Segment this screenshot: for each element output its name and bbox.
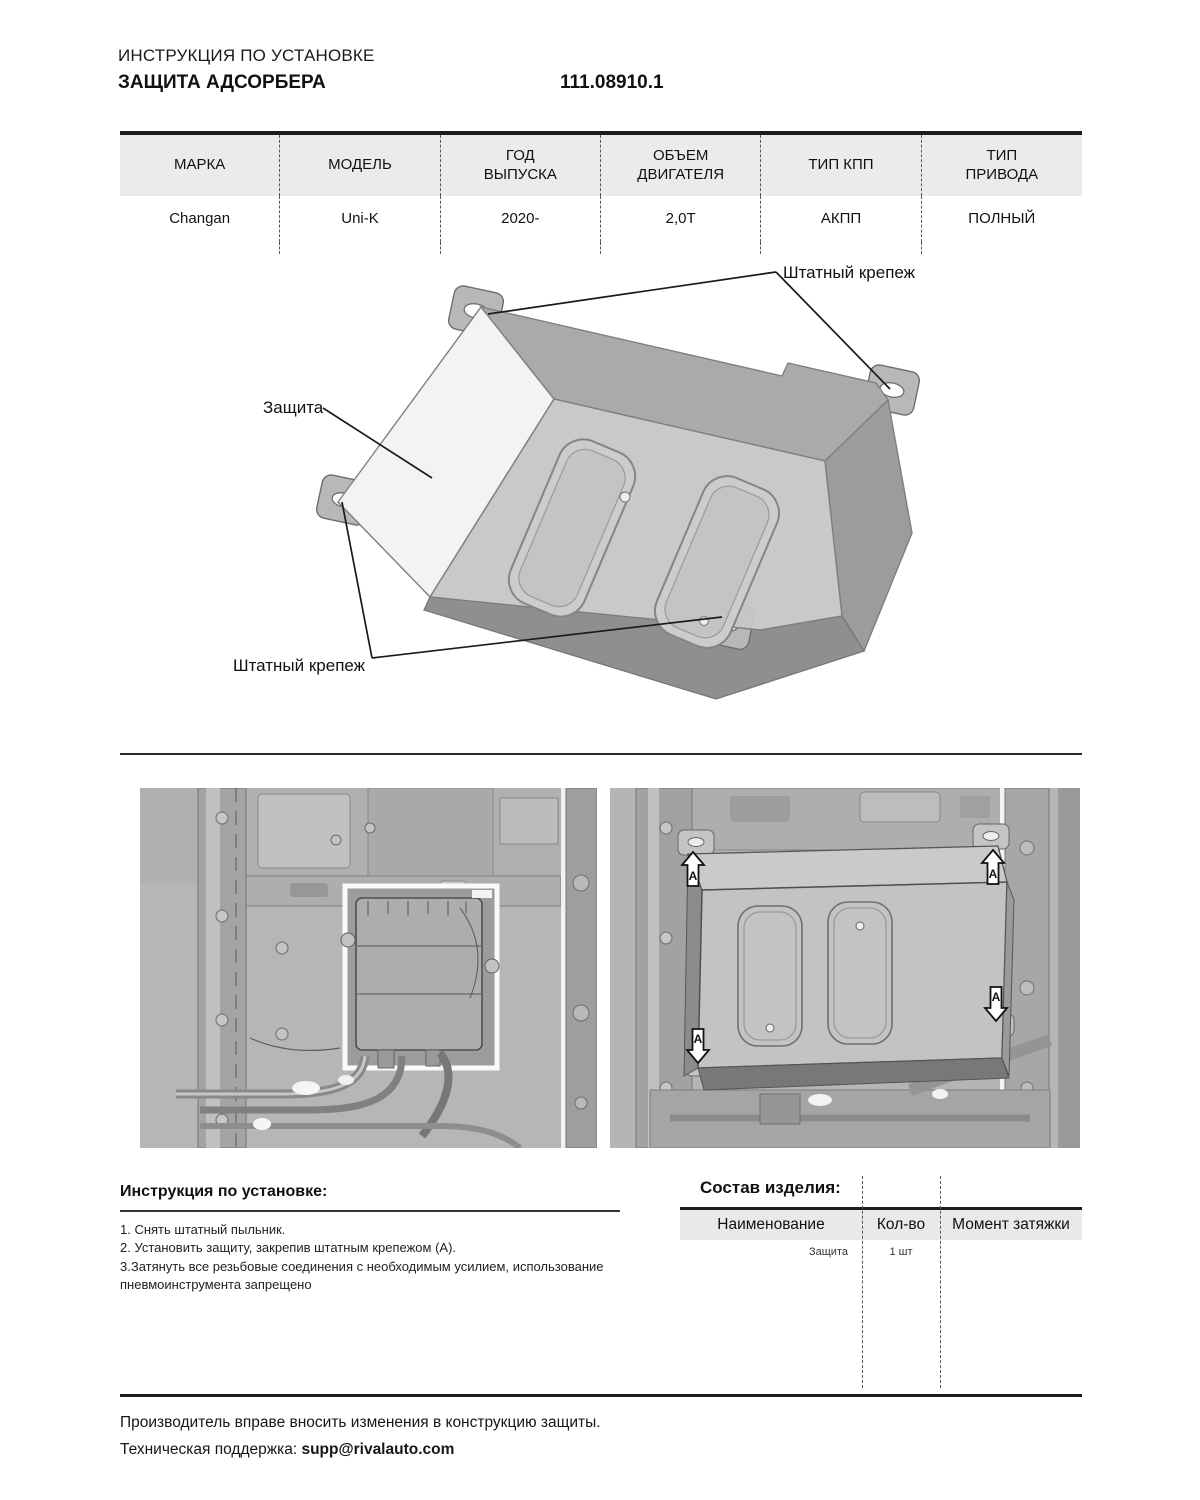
instruction-step: 3.Затянуть все резьбовые соединения с не…	[120, 1258, 660, 1295]
spec-value: 2,0T	[601, 196, 761, 242]
label-fastener-top: Штатный крепеж	[783, 263, 916, 282]
composition-item-torque	[940, 1240, 1082, 1264]
part-number: 111.08910.1	[560, 72, 664, 94]
label-fastener-bottom: Штатный крепеж	[233, 656, 366, 675]
spec-col-header: ТИП КПП	[761, 135, 921, 196]
canister-bracket	[485, 959, 499, 973]
mount-point	[678, 830, 714, 855]
spec-col-header: ГОД ВЫПУСКА	[441, 135, 601, 196]
composition-col-header: Момент затяжки	[940, 1210, 1082, 1240]
footer-support: Техническая поддержка: supp@rivalauto.co…	[120, 1437, 601, 1464]
support-email: supp@rivalauto.com	[301, 1441, 454, 1458]
composition-col-header: Наименование	[680, 1210, 862, 1240]
instructions-rule	[120, 1210, 620, 1212]
spec-value: 2020-	[441, 196, 601, 242]
composition-table: Наименование Кол-во Момент затяжки Защит…	[680, 1207, 1082, 1264]
adsorber-canister	[356, 898, 482, 1068]
instruction-step: 1. Снять штатный пыльник.	[120, 1221, 660, 1239]
composition-divider	[862, 1176, 863, 1388]
spec-col-header: ОБЪЕМ ДВИГАТЕЛЯ	[601, 135, 761, 196]
footer-rule	[120, 1394, 1082, 1397]
page-title: ЗАЩИТА АДСОРБЕРА	[118, 72, 326, 93]
photo-underbody-installed: A A A A	[610, 788, 1080, 1148]
spec-value: Changan	[120, 196, 280, 242]
spec-value: ПОЛНЫЙ	[922, 196, 1082, 242]
instruction-step: 2. Установить защиту, закрепив штатным к…	[120, 1239, 660, 1257]
svg-text:A: A	[992, 990, 1001, 1004]
spec-value: Uni-K	[280, 196, 440, 242]
svg-text:A: A	[989, 867, 998, 881]
instructions-title: Инструкция по установке:	[120, 1183, 665, 1201]
composition-row: Защита 1 шт	[680, 1240, 1082, 1264]
installation-instructions: Инструкция по установке: 1. Снять штатны…	[120, 1183, 665, 1295]
footer: Производитель вправе вносить изменения в…	[120, 1410, 601, 1463]
mount-point	[973, 824, 1009, 849]
leader-fastener-top-a	[488, 272, 776, 314]
composition-title: Состав изделия:	[700, 1178, 841, 1198]
spec-value: АКПП	[761, 196, 921, 242]
composition-col-header: Кол-во	[862, 1210, 940, 1240]
svg-text:A: A	[694, 1032, 703, 1046]
spec-col-header: ТИП ПРИВОДА	[922, 135, 1082, 196]
composition-divider	[940, 1176, 941, 1388]
doc-type: ИНСТРУКЦИЯ ПО УСТАНОВКЕ	[118, 46, 1082, 66]
guard-hole	[620, 492, 630, 502]
spec-col-header: МАРКА	[120, 135, 280, 196]
installed-guard-plate	[684, 846, 1014, 1090]
product-composition: Состав изделия: Наименование Кол-во Моме…	[680, 1176, 1082, 1388]
spec-col-header: МОДЕЛЬ	[280, 135, 440, 196]
vehicle-spec-table: МАРКА МОДЕЛЬ ГОД ВЫПУСКА ОБЪЕМ ДВИГАТЕЛЯ…	[120, 131, 1082, 254]
composition-item-qty: 1 шт	[862, 1240, 940, 1264]
composition-item-name: Защита	[680, 1240, 862, 1264]
frame-rail-right	[566, 788, 597, 1148]
section-divider	[120, 753, 1082, 755]
guard-technical-drawing: Штатный крепеж Защита Штатный крепеж	[120, 250, 1080, 750]
instruction-sheet: ИНСТРУКЦИЯ ПО УСТАНОВКЕ ЗАЩИТА АДСОРБЕРА…	[0, 0, 1200, 1500]
label-guard: Защита	[263, 398, 324, 417]
photo-underbody-before	[140, 788, 597, 1148]
guard-hole	[700, 617, 709, 626]
header: ИНСТРУКЦИЯ ПО УСТАНОВКЕ ЗАЩИТА АДСОРБЕРА…	[118, 46, 1082, 94]
footer-disclaimer: Производитель вправе вносить изменения в…	[120, 1410, 601, 1437]
svg-text:A: A	[689, 869, 698, 883]
canister-bracket	[341, 933, 355, 947]
